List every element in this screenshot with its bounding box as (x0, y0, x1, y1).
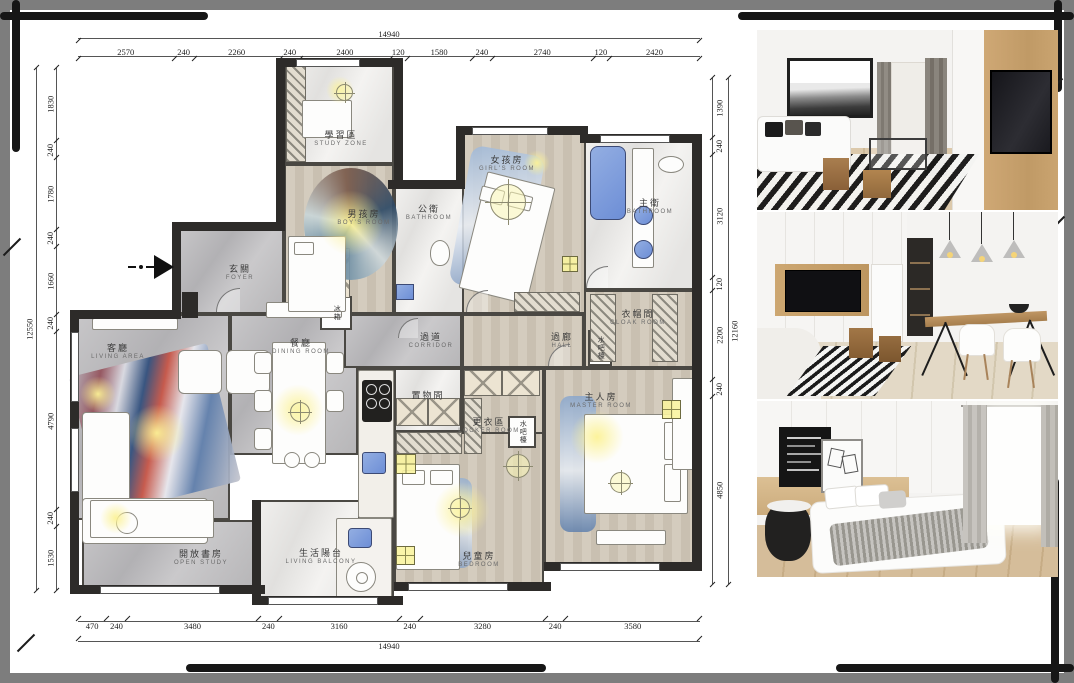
room-label-storage: 置物間 (411, 391, 444, 402)
presentation-board: 學習區STUDY ZONE男孩房BOY'S ROOM公衛BATHROOM女孩房G… (0, 0, 1074, 683)
photo2-pendant-lamp (1003, 212, 1025, 260)
room-label-dining: 餐廳DINING ROOM (272, 338, 330, 356)
room-label-balcony: 生活陽台LIVING BALCONY (285, 548, 356, 566)
room-label-fridge: 冰箱 (332, 305, 340, 321)
photo2-chair (959, 324, 995, 356)
photo3-window (983, 407, 1045, 525)
room-label-master-room: 主人房MASTER ROOM (570, 392, 632, 410)
photo3-pillow (878, 490, 906, 509)
photo1-coffee-table (869, 138, 927, 170)
room-label-water-bar-2: 水吧檯 (518, 420, 526, 444)
room-label-boy-room: 男孩房BOY'S ROOM (337, 209, 390, 227)
room-label-kid-room: 兒童房BEDROOM (458, 551, 500, 569)
photo3-curtain (963, 405, 987, 543)
labels-layer: 學習區STUDY ZONE男孩房BOY'S ROOM公衛BATHROOM女孩房G… (0, 0, 760, 683)
room-label-public-bath: 公衛BATHROOM (406, 204, 452, 222)
photo2-pendant-lamp (939, 212, 961, 260)
photo1-tv (990, 70, 1052, 154)
room-label-study-zone: 學習區STUDY ZONE (314, 130, 368, 148)
bedroom-photo (757, 401, 1058, 577)
photo2-wood-stool (849, 328, 873, 358)
photo1-pillow (765, 122, 783, 137)
photo2-chair (1003, 328, 1041, 362)
room-label-cloak-room: 衣帽間CLOAK ROOM (610, 309, 666, 327)
frame-corner-bar (738, 12, 1074, 20)
room-label-water-bar-1: 水吧檯 (596, 336, 604, 360)
room-label-master-bath: 主衛BATHROOM (627, 198, 673, 216)
photo-column (757, 30, 1058, 577)
room-label-open-study: 開放書房OPEN STUDY (174, 549, 228, 567)
room-label-girl-room: 女孩房GIRL'S ROOM (479, 155, 535, 173)
room-label-hall: 過廊HALL (551, 332, 573, 350)
photo1-wood-stool (823, 158, 849, 190)
dining-area-photo (757, 212, 1058, 399)
photo2-door (871, 264, 903, 342)
frame-corner-bar (836, 664, 1074, 672)
room-label-living: 客廳LIVING AREA (91, 343, 145, 361)
photo2-wood-stool (879, 336, 901, 362)
room-label-foyer: 玄關FOYER (226, 264, 254, 282)
photo1-wood-stool (863, 170, 891, 198)
photo2-tv (785, 270, 861, 312)
photo2-pendant-lamp (971, 212, 993, 264)
photo3-curtain (1041, 405, 1058, 547)
room-label-corridor: 過道CORRIDOR (409, 332, 454, 350)
living-room-photo (757, 30, 1058, 210)
room-label-locker-room: 更衣區LOCKER ROOM (458, 417, 520, 435)
photo1-pillow (805, 122, 821, 136)
photo1-pillow (785, 120, 803, 135)
photo1-artwork (787, 58, 873, 118)
photo3-white-artwork (821, 439, 863, 493)
